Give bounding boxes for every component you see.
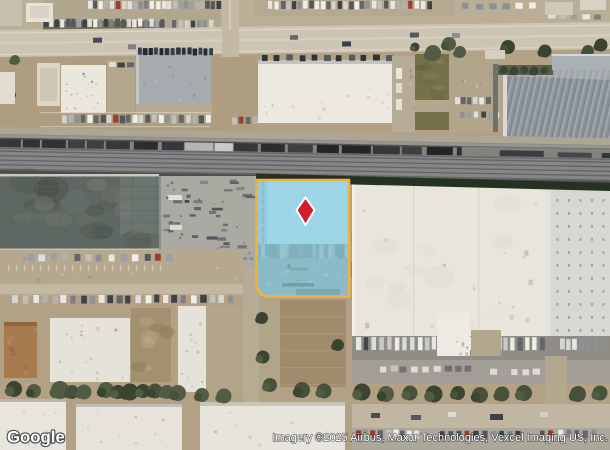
svg-text:Imagery ©2025 Airbus, Maxar Te: Imagery ©2025 Airbus, Maxar Technologies… <box>272 432 608 444</box>
svg-text:Google: Google <box>7 428 65 447</box>
